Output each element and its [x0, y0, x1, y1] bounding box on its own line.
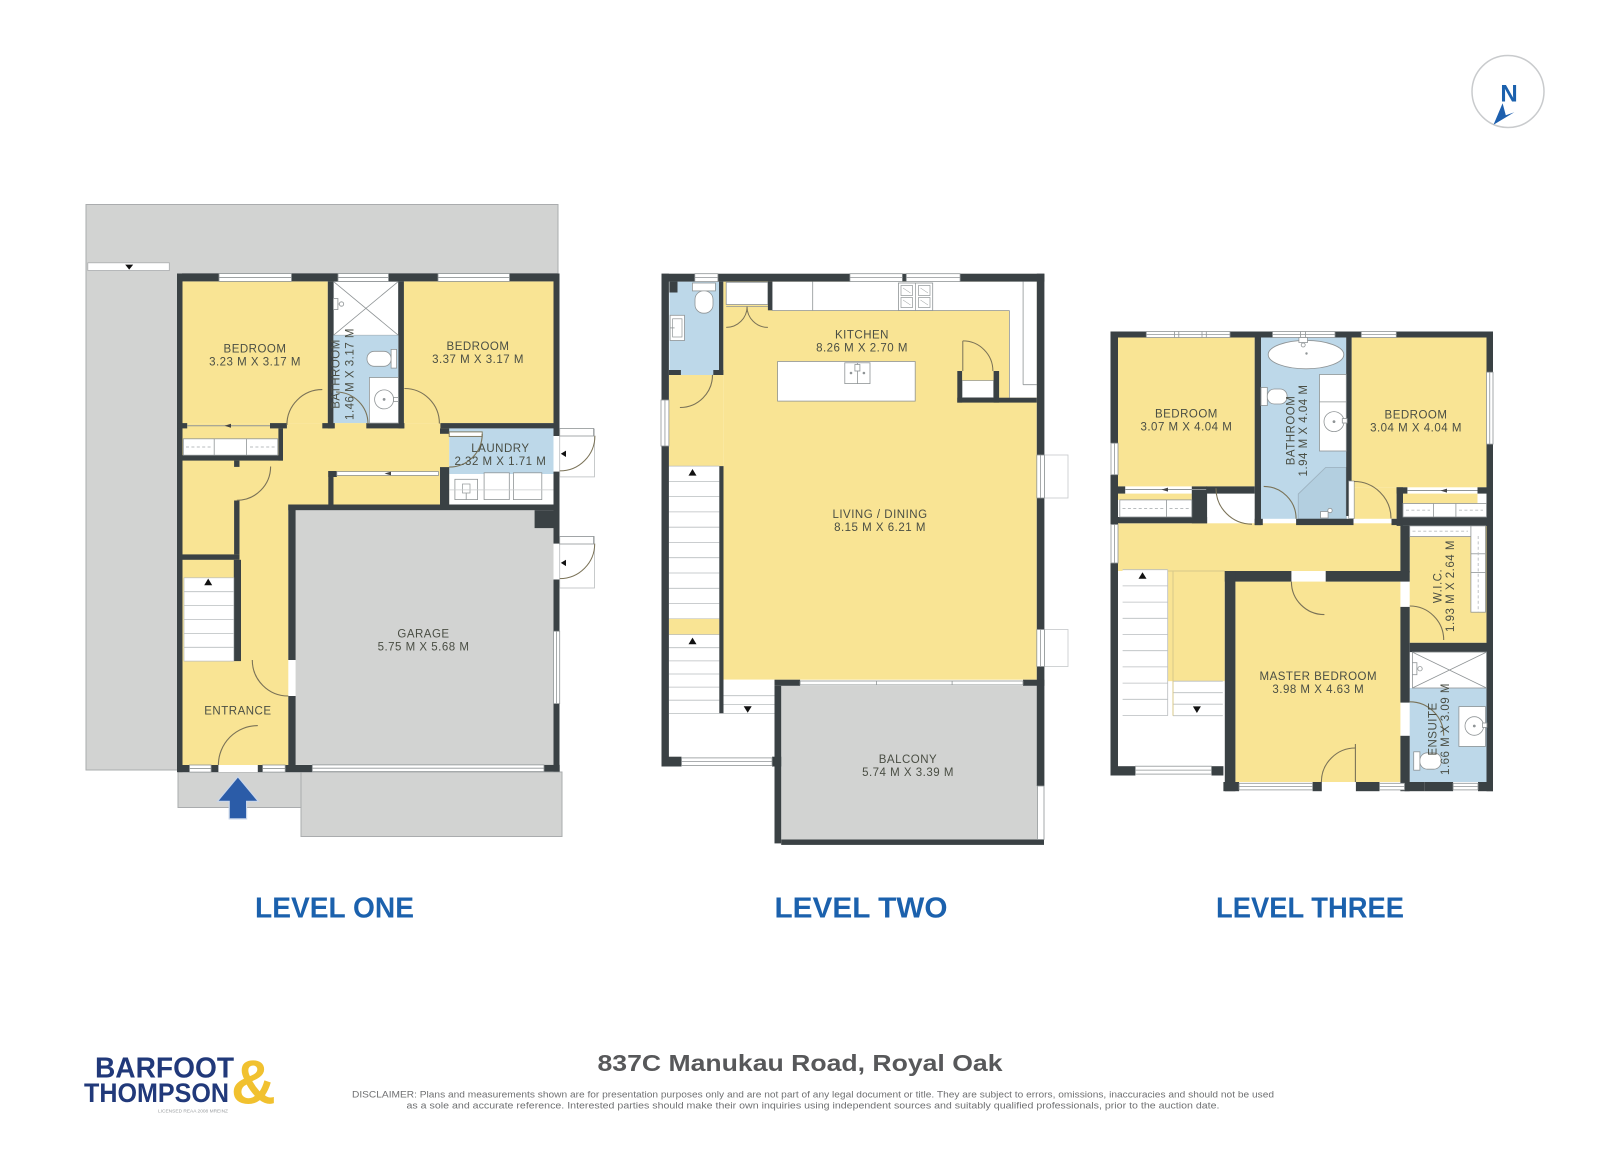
svg-text:8.15 M X 6.21 M: 8.15 M X 6.21 M: [834, 522, 926, 534]
svg-text:8.26 M X 2.70 M: 8.26 M X 2.70 M: [816, 343, 908, 355]
svg-text:LICENSED REAA 2008 MREINZ: LICENSED REAA 2008 MREINZ: [158, 1109, 228, 1114]
svg-text:BATHROOM: BATHROOM: [331, 339, 343, 409]
svg-text:ENTRANCE: ENTRANCE: [204, 706, 271, 718]
svg-text:DISCLAIMER: Plans and measurem: DISCLAIMER: Plans and measurements shown…: [352, 1090, 1274, 1100]
svg-text:2.32 M X 1.71 M: 2.32 M X 1.71 M: [454, 456, 546, 468]
svg-text:THOMPSON: THOMPSON: [84, 1078, 229, 1108]
svg-text:BALCONY: BALCONY: [879, 754, 937, 766]
svg-text:LAUNDRY: LAUNDRY: [471, 443, 529, 455]
svg-text:3.37 M X 3.17 M: 3.37 M X 3.17 M: [432, 354, 524, 366]
svg-text:KITCHEN: KITCHEN: [835, 330, 889, 342]
svg-text:LIVING / DINING: LIVING / DINING: [832, 509, 927, 521]
svg-text:N: N: [1500, 81, 1517, 108]
svg-text:1.94 M X 4.04 M: 1.94 M X 4.04 M: [1298, 385, 1310, 477]
svg-text:BEDROOM: BEDROOM: [1155, 409, 1218, 421]
svg-text:837C Manukau Road, Royal Oak: 837C Manukau Road, Royal Oak: [598, 1050, 1003, 1076]
svg-text:&: &: [231, 1049, 276, 1118]
svg-text:3.98 M X 4.63 M: 3.98 M X 4.63 M: [1272, 684, 1364, 696]
svg-text:BEDROOM: BEDROOM: [224, 344, 287, 356]
svg-text:3.07 M X 4.04 M: 3.07 M X 4.04 M: [1140, 422, 1232, 434]
svg-text:LEVEL TWO: LEVEL TWO: [775, 893, 948, 925]
svg-text:1.46 M X 3.17 M: 1.46 M X 3.17 M: [345, 328, 357, 420]
svg-text:5.75 M X 5.68 M: 5.75 M X 5.68 M: [378, 642, 470, 654]
svg-text:MASTER BEDROOM: MASTER BEDROOM: [1260, 671, 1378, 683]
svg-text:1.66 M X 3.09 M: 1.66 M X 3.09 M: [1440, 683, 1452, 775]
svg-text:3.23 M X 3.17 M: 3.23 M X 3.17 M: [209, 357, 301, 369]
svg-text:LEVEL ONE: LEVEL ONE: [255, 893, 414, 925]
svg-text:BEDROOM: BEDROOM: [447, 341, 510, 353]
svg-text:5.74 M X 3.39 M: 5.74 M X 3.39 M: [862, 767, 954, 779]
svg-text:LEVEL THREE: LEVEL THREE: [1216, 893, 1404, 925]
svg-text:3.04 M X 4.04 M: 3.04 M X 4.04 M: [1370, 423, 1462, 435]
svg-text:GARAGE: GARAGE: [397, 629, 449, 641]
svg-text:1.93 M X 2.64 M: 1.93 M X 2.64 M: [1445, 540, 1457, 632]
svg-text:BEDROOM: BEDROOM: [1385, 410, 1448, 422]
svg-text:W.I.C.: W.I.C.: [1433, 569, 1445, 603]
svg-text:as a sole and accurate referen: as a sole and accurate reference. Intere…: [407, 1101, 1220, 1111]
svg-text:BATHROOM: BATHROOM: [1286, 396, 1298, 466]
svg-text:ENSUITE: ENSUITE: [1428, 702, 1440, 755]
